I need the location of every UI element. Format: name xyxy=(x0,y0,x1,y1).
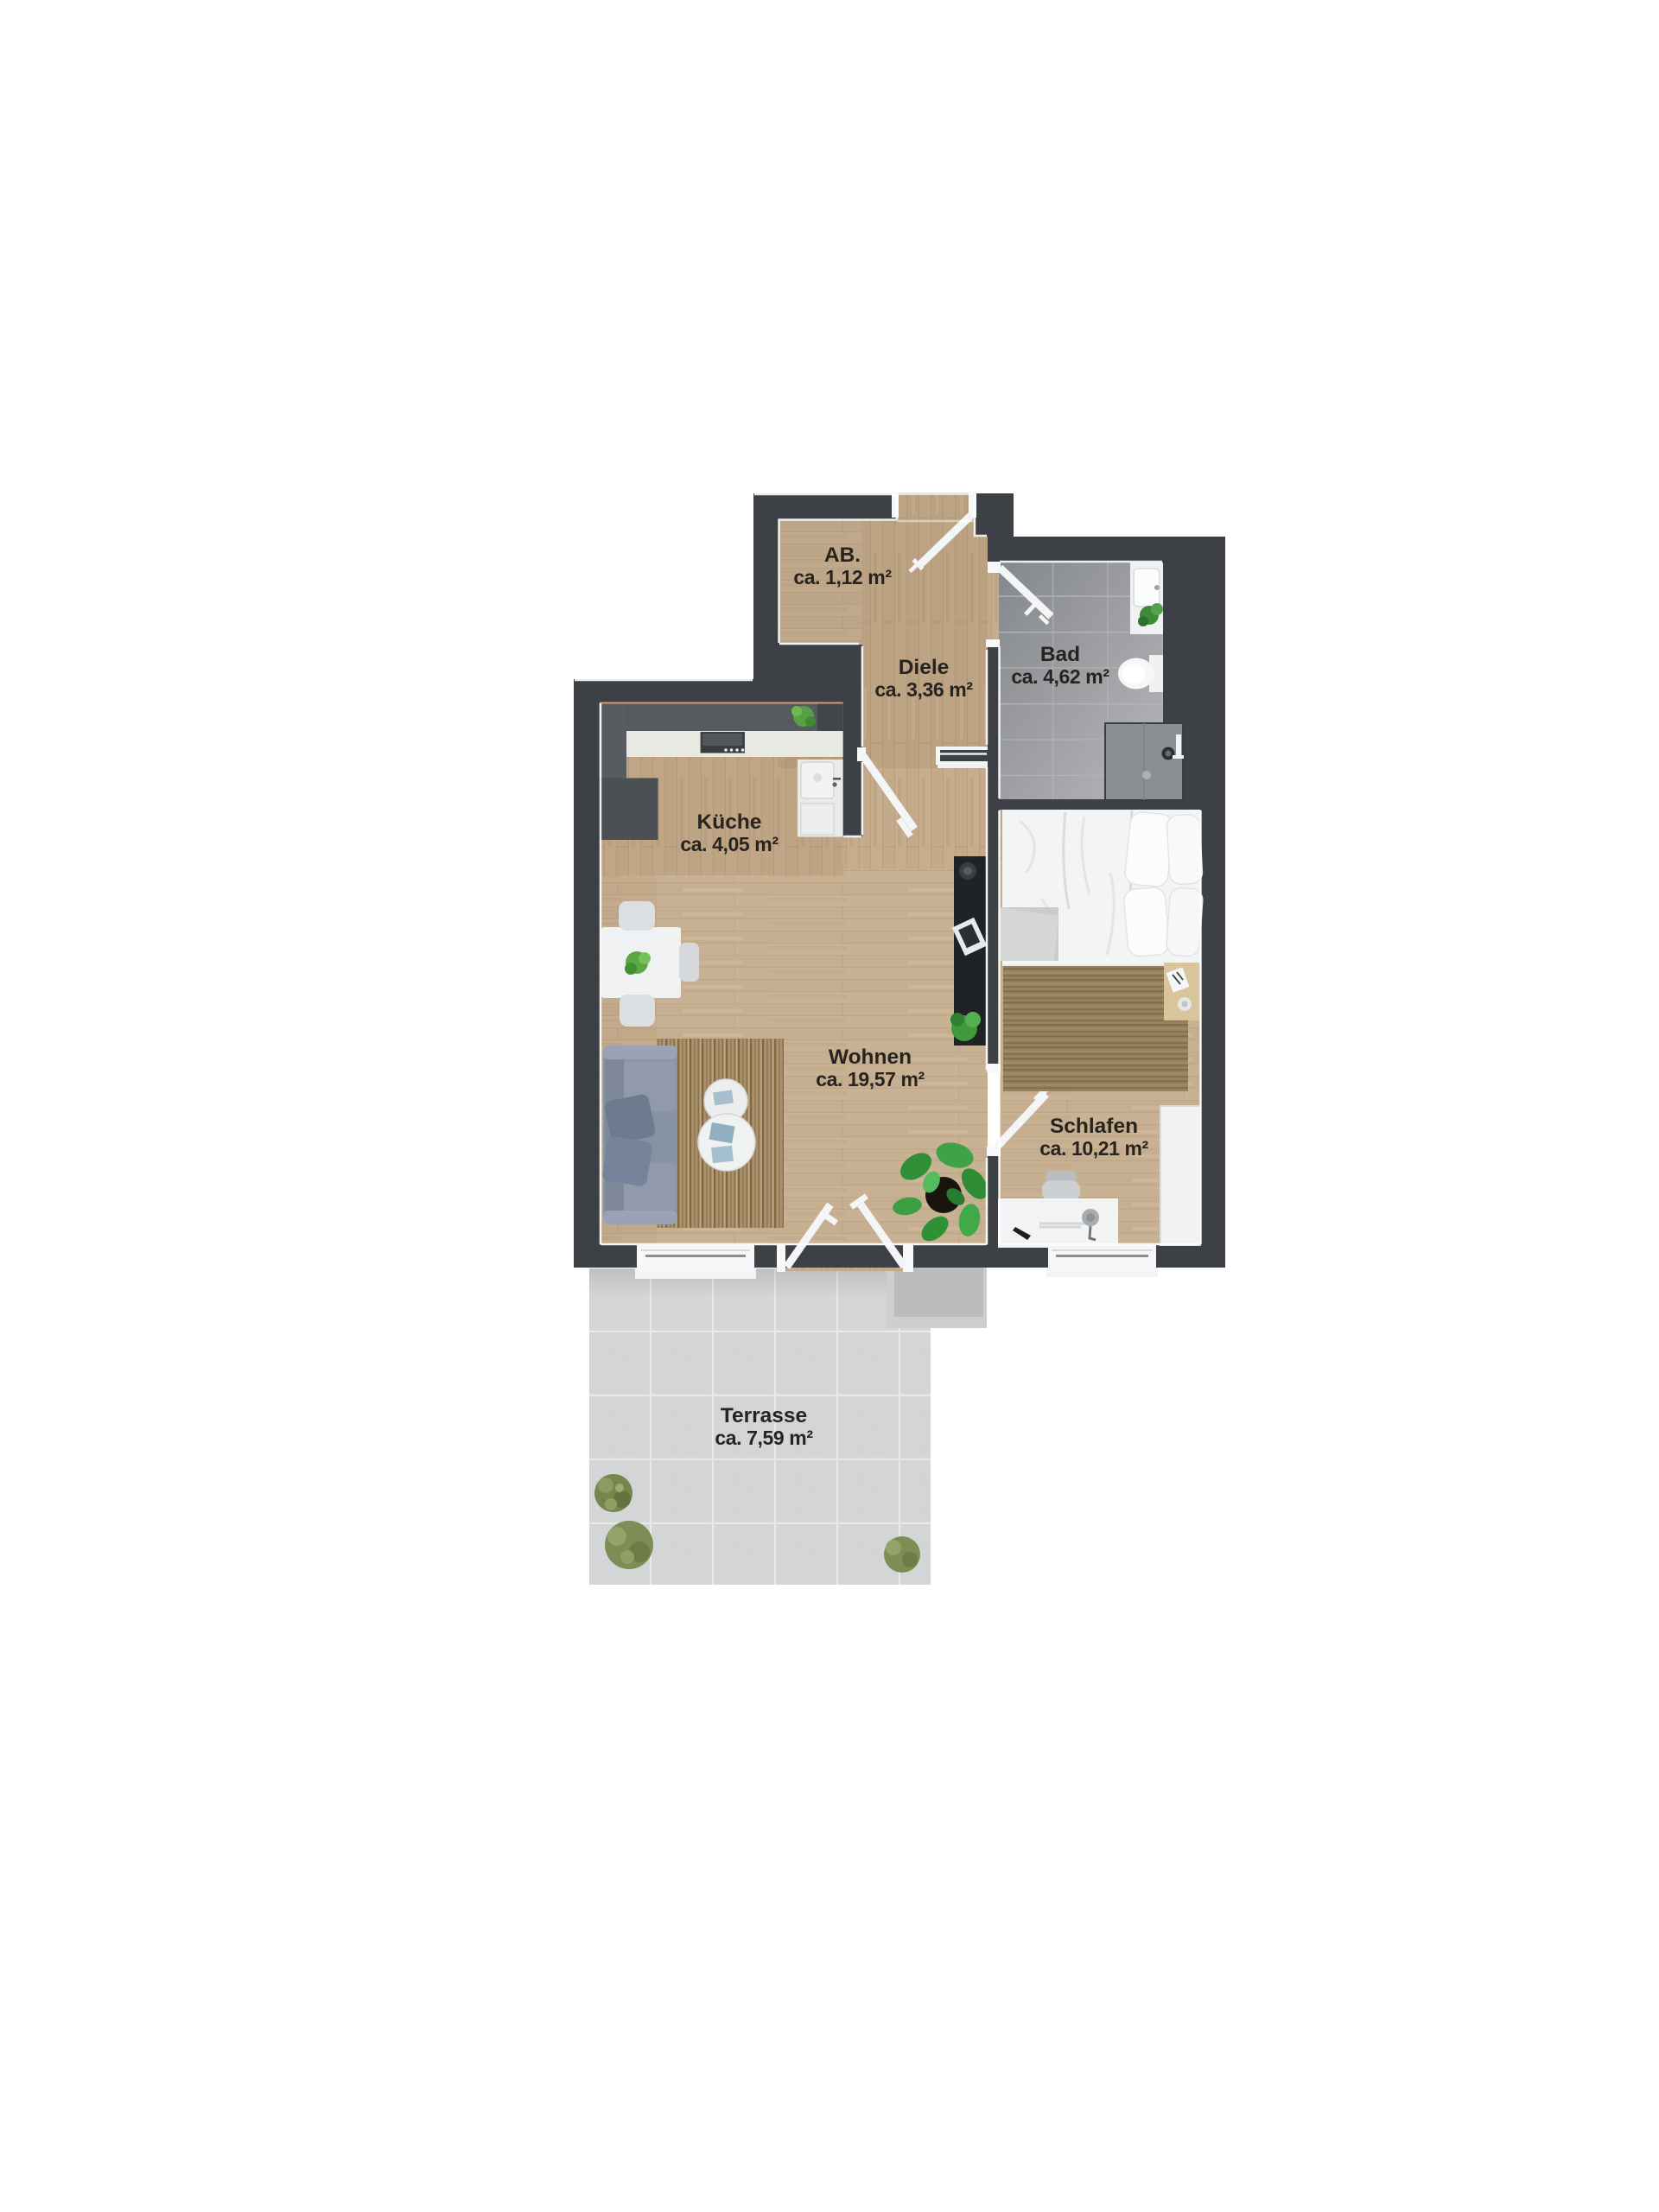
svg-text:ca. 19,57 m²: ca. 19,57 m² xyxy=(816,1068,925,1090)
svg-text:Diele: Diele xyxy=(899,656,950,679)
svg-text:AB.: AB. xyxy=(824,543,861,567)
svg-text:Schlafen: Schlafen xyxy=(1050,1115,1138,1138)
svg-text:ca. 10,21 m²: ca. 10,21 m² xyxy=(1039,1137,1148,1160)
svg-text:Wohnen: Wohnen xyxy=(829,1046,912,1069)
svg-text:Terrasse: Terrasse xyxy=(721,1404,807,1427)
svg-text:ca. 4,05 m²: ca. 4,05 m² xyxy=(680,833,779,855)
svg-text:ca. 3,36 m²: ca. 3,36 m² xyxy=(874,678,973,701)
svg-text:Bad: Bad xyxy=(1040,643,1080,666)
svg-text:Küche: Küche xyxy=(697,810,762,834)
svg-text:ca. 1,12 m²: ca. 1,12 m² xyxy=(793,566,892,588)
svg-text:ca. 4,62 m²: ca. 4,62 m² xyxy=(1011,665,1109,688)
svg-text:ca. 7,59 m²: ca. 7,59 m² xyxy=(715,1427,813,1449)
